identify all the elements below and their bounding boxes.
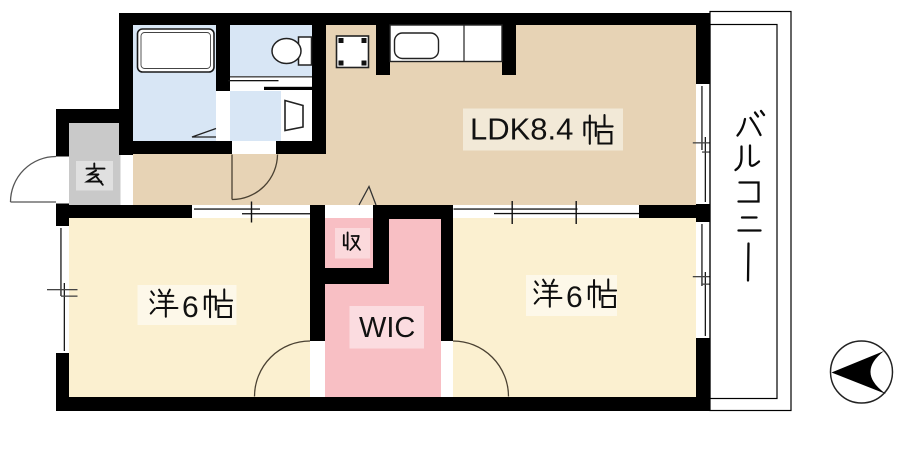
svg-text:6: 6 — [566, 281, 583, 314]
svg-text:6: 6 — [182, 291, 199, 324]
svg-text:WIC: WIC — [359, 312, 415, 344]
svg-text:LDK8.4: LDK8.4 — [470, 112, 573, 147]
